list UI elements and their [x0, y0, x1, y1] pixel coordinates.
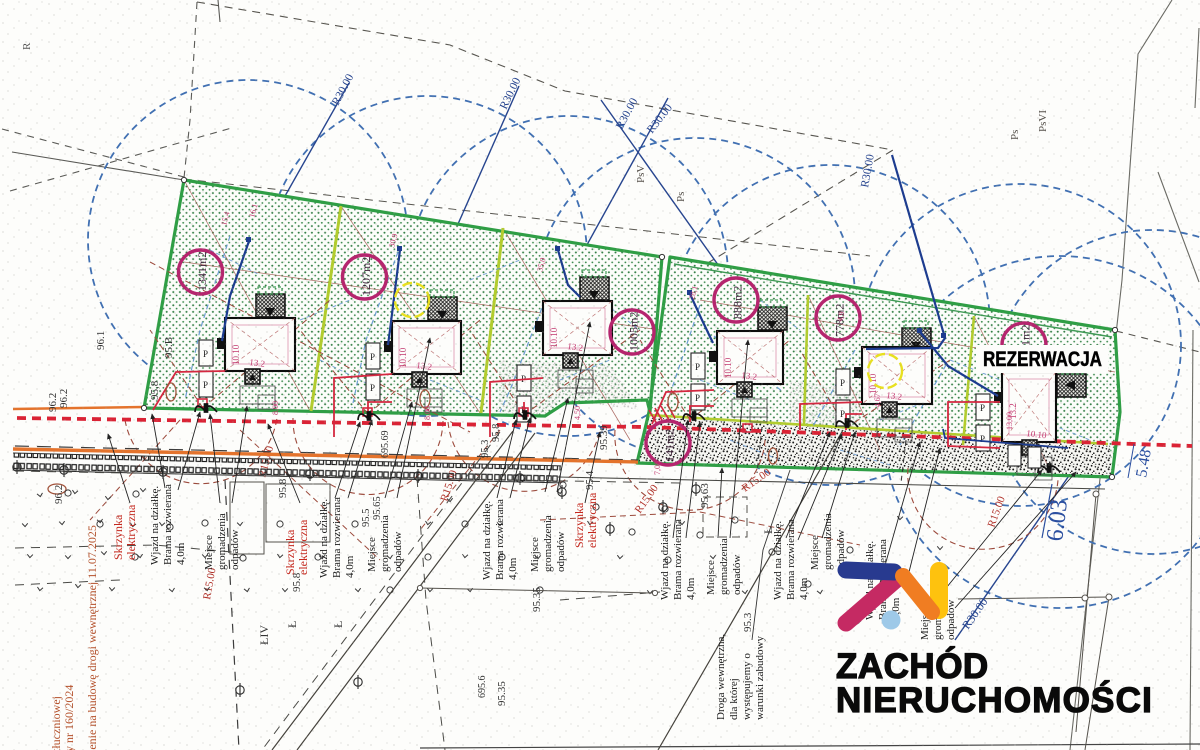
svg-text:REZERWACJA: REZERWACJA [983, 348, 1102, 371]
svg-text:ZACHÓD: ZACHÓD [836, 646, 989, 686]
svg-text:NIERUCHOMOŚCI: NIERUCHOMOŚCI [836, 680, 1153, 720]
